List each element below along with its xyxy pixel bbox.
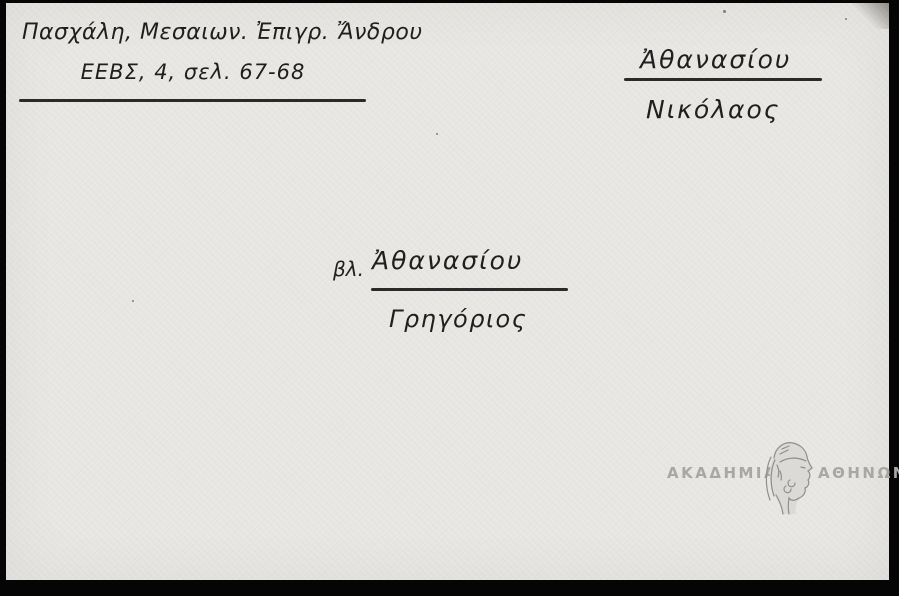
card-corner-shadow xyxy=(843,3,889,29)
reference-line-1: Πασχάλη, Μεσαιων. Ἐπιγρ. Ἄνδρου xyxy=(22,20,423,45)
cross-reference-underline-stroke xyxy=(371,288,568,291)
athena-head-emblem-icon xyxy=(760,437,816,515)
paper-speck xyxy=(132,300,134,302)
paper-speck xyxy=(436,133,438,135)
reference-line-2: ΕΕΒΣ, 4, σελ. 67-68 xyxy=(20,60,366,84)
index-card: Πασχάλη, Μεσαιων. Ἐπιγρ. Ἄνδρου ΕΕΒΣ, 4,… xyxy=(6,3,889,580)
paper-speck xyxy=(723,10,726,13)
see-abbreviation: βλ. xyxy=(333,257,364,281)
scanned-card-photo: Πασχάλη, Μεσαιων. Ἐπιγρ. Ἄνδρου ΕΕΒΣ, 4,… xyxy=(0,0,899,596)
cross-reference-given-name: Γρηγόριος xyxy=(389,305,527,333)
heading-underline-stroke xyxy=(624,78,822,81)
paper-speck xyxy=(845,18,847,20)
cross-reference-surname: Ἀθανασίου xyxy=(372,246,523,275)
stamp-text-right: ΑΘΗΝΩΝ xyxy=(818,464,899,482)
heading-given-name: Νικόλαος xyxy=(646,95,780,124)
reference-underline-stroke xyxy=(19,99,366,102)
heading-surname: Ἀθανασίου xyxy=(640,45,791,74)
